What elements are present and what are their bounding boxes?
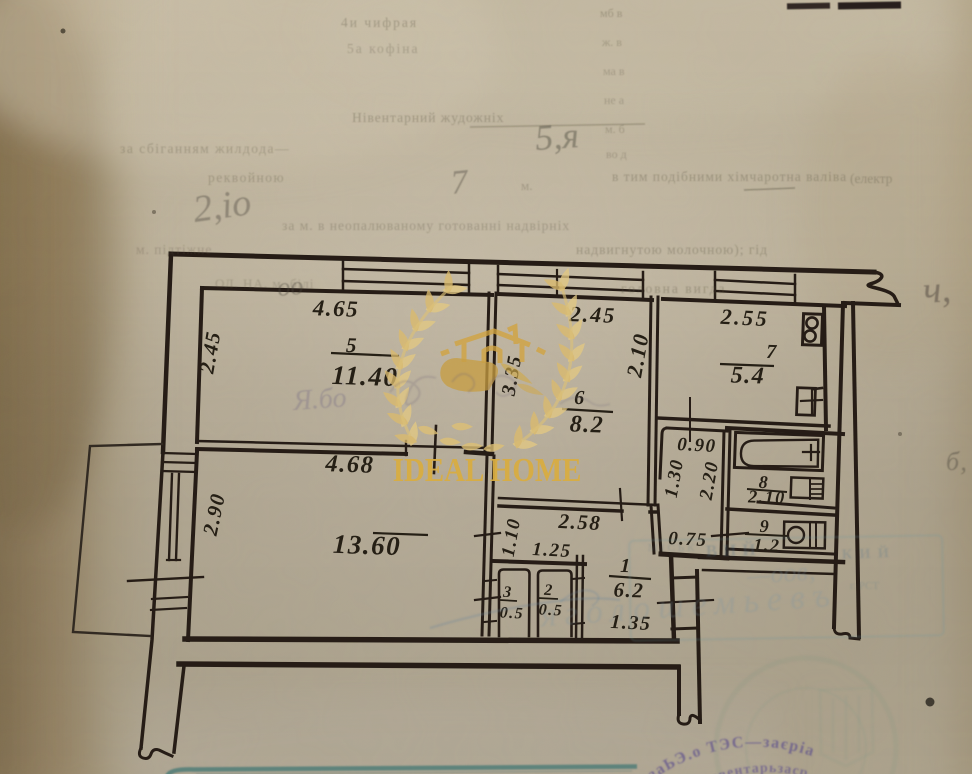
svg-text:5а кофіна: 5а кофіна xyxy=(347,41,419,56)
svg-text:4.65: 4.65 xyxy=(311,295,359,322)
svg-text:м.: м. xyxy=(521,178,532,193)
svg-text:за м. в неопалюваному готованн: за м. в неопалюваному готованні надвірні… xyxy=(282,218,570,233)
svg-text:IDEAL HOME: IDEAL HOME xyxy=(393,451,582,489)
svg-text:1.25: 1.25 xyxy=(532,539,572,562)
svg-text:ВИЙ: ВИЙ xyxy=(705,540,761,561)
svg-text:ж. в: ж. в xyxy=(601,35,622,49)
svg-text:К И Й: К И Й xyxy=(842,544,892,563)
svg-text:м. підтіжне: м. підтіжне xyxy=(136,242,212,257)
svg-text:7: 7 xyxy=(766,341,778,363)
svg-text:оо: оо xyxy=(276,271,304,302)
svg-text:г. РСТ: г. РСТ xyxy=(850,580,879,592)
svg-text:мб в: мб в xyxy=(600,6,623,20)
svg-text:во д: во д xyxy=(606,147,627,161)
svg-text:2.55: 2.55 xyxy=(719,304,770,332)
svg-text:МІСЬК: МІСЬК xyxy=(648,542,697,554)
svg-text:надвигнутою молочною); гід: надвигнутою молочною); гід xyxy=(576,242,768,257)
svg-text:2.58: 2.58 xyxy=(557,509,602,535)
svg-text:ч,: ч, xyxy=(922,268,953,312)
svg-text:Я.бо̀: Я.бо̀ xyxy=(291,382,347,417)
svg-text:не а: не а xyxy=(604,93,625,107)
svg-text:5.4: 5.4 xyxy=(730,362,765,389)
svg-text:ма в: ма в xyxy=(603,64,625,78)
svg-text:4.68: 4.68 xyxy=(324,450,375,479)
svg-text:(електр: (електр xyxy=(850,171,893,186)
svg-text:головна вигда: головна вигда xyxy=(621,281,727,296)
svg-text:4и чифрая: 4и чифрая xyxy=(341,15,418,30)
svg-text:Нівентарний жудожніх: Нівентарний жудожніх xyxy=(352,110,504,125)
svg-text:в тим подібними хімчаротна вал: в тим подібними хімчаротна валіва xyxy=(612,169,847,184)
svg-text:за сбіганням жилдода—: за сбіганням жилдода— xyxy=(120,141,290,156)
svg-text:13.60: 13.60 xyxy=(332,529,401,561)
svg-text:б‚: б‚ xyxy=(946,447,968,476)
svg-text:5,я: 5,я xyxy=(534,115,580,158)
svg-text:8.2: 8.2 xyxy=(569,411,604,438)
svg-text:2,іо: 2,іо xyxy=(190,181,253,231)
svg-text:3: 3 xyxy=(502,584,513,602)
svg-text:9: 9 xyxy=(759,516,770,536)
svg-text:2.10: 2.10 xyxy=(747,486,786,507)
svg-text:0.90: 0.90 xyxy=(677,434,717,457)
